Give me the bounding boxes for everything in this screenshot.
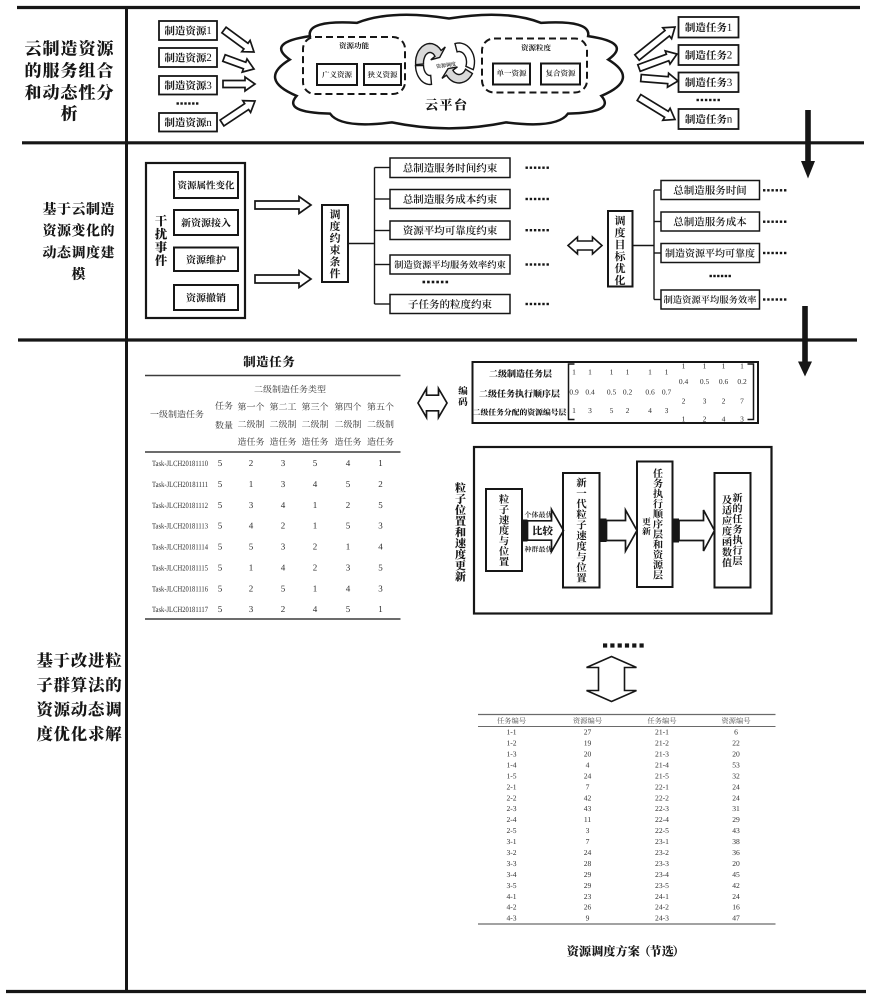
svg-text:29: 29	[584, 881, 592, 890]
svg-text:4: 4	[586, 761, 590, 770]
svg-text:23-3: 23-3	[655, 859, 669, 868]
svg-text:47: 47	[732, 914, 740, 923]
svg-text:2-1: 2-1	[506, 782, 516, 791]
svg-text:5: 5	[218, 458, 223, 468]
svg-text:5: 5	[610, 406, 614, 415]
svg-text:3: 3	[281, 542, 286, 552]
svg-text:26: 26	[584, 903, 592, 912]
svg-text:5: 5	[249, 542, 254, 552]
svg-text:22-4: 22-4	[655, 815, 669, 824]
svg-text:n: n	[206, 117, 212, 129]
svg-text:1: 1	[626, 368, 630, 377]
svg-text:1: 1	[378, 458, 383, 468]
svg-text:1: 1	[727, 22, 733, 34]
svg-text:36: 36	[732, 848, 740, 857]
svg-text:21-5: 21-5	[655, 771, 669, 780]
svg-text:22-2: 22-2	[655, 793, 669, 802]
svg-text:22: 22	[732, 739, 740, 748]
svg-text:24-2: 24-2	[655, 903, 669, 912]
svg-text:4: 4	[346, 458, 351, 468]
svg-text:Task-JLCH20181110: Task-JLCH20181110	[152, 459, 208, 468]
svg-text:0.2: 0.2	[623, 388, 633, 397]
svg-text:0.4: 0.4	[585, 388, 595, 397]
svg-text:1: 1	[572, 406, 576, 415]
svg-text:2: 2	[249, 584, 254, 594]
svg-text:3: 3	[249, 604, 254, 614]
svg-text:4: 4	[313, 479, 318, 489]
svg-text:0.5: 0.5	[700, 377, 710, 386]
svg-text:5: 5	[346, 479, 351, 489]
svg-text:7: 7	[586, 782, 590, 791]
svg-text:2: 2	[206, 52, 212, 64]
svg-text:31: 31	[732, 804, 740, 813]
svg-text:3: 3	[249, 500, 254, 510]
svg-text:22-5: 22-5	[655, 826, 669, 835]
svg-text:42: 42	[584, 793, 592, 802]
svg-text:22-1: 22-1	[655, 782, 669, 791]
svg-text:24: 24	[584, 771, 592, 780]
svg-text:Task-JLCH20181114: Task-JLCH20181114	[152, 542, 208, 551]
svg-text:1-1: 1-1	[506, 728, 516, 737]
svg-text:9: 9	[586, 914, 590, 923]
svg-text:0.5: 0.5	[607, 388, 617, 397]
svg-text:2: 2	[626, 406, 630, 415]
svg-text:4-2: 4-2	[506, 903, 516, 912]
svg-text:28: 28	[584, 859, 592, 868]
svg-text:7: 7	[740, 397, 744, 406]
svg-text:1: 1	[313, 500, 318, 510]
svg-text:4: 4	[249, 521, 254, 531]
svg-text:11: 11	[584, 815, 592, 824]
svg-text:1: 1	[665, 368, 669, 377]
svg-text:5: 5	[218, 542, 223, 552]
svg-text:24: 24	[732, 892, 740, 901]
svg-text:5: 5	[378, 563, 383, 573]
svg-text:3: 3	[740, 415, 744, 424]
svg-text:23: 23	[584, 892, 592, 901]
svg-text:5: 5	[313, 458, 318, 468]
svg-text:5: 5	[346, 521, 351, 531]
svg-text:5: 5	[218, 604, 223, 614]
svg-text:3: 3	[346, 563, 351, 573]
svg-text:4: 4	[648, 406, 652, 415]
svg-text:5: 5	[346, 604, 351, 614]
svg-text:3: 3	[588, 406, 592, 415]
svg-text:2-2: 2-2	[506, 793, 516, 802]
svg-text:3: 3	[665, 406, 669, 415]
svg-text:3: 3	[586, 826, 590, 835]
svg-text:1: 1	[313, 584, 318, 594]
svg-text:2: 2	[249, 458, 254, 468]
svg-text:2: 2	[281, 604, 286, 614]
svg-text:38: 38	[732, 837, 740, 846]
svg-text:3: 3	[206, 80, 212, 92]
svg-text:23-4: 23-4	[655, 870, 669, 879]
svg-text:2: 2	[703, 415, 707, 424]
svg-text:1: 1	[249, 479, 254, 489]
svg-text:24: 24	[732, 782, 740, 791]
svg-text:43: 43	[732, 826, 740, 835]
svg-text:3-2: 3-2	[506, 848, 516, 857]
svg-text:1: 1	[572, 368, 576, 377]
svg-text:3: 3	[703, 397, 707, 406]
svg-text:1: 1	[249, 563, 254, 573]
svg-text:24: 24	[732, 793, 740, 802]
svg-text:0.9: 0.9	[569, 388, 579, 397]
svg-text:1: 1	[206, 25, 212, 37]
svg-text:20: 20	[584, 750, 592, 759]
svg-text:4-1: 4-1	[506, 892, 516, 901]
svg-text:2: 2	[313, 542, 318, 552]
svg-text:23-5: 23-5	[655, 881, 669, 890]
svg-text:21-3: 21-3	[655, 750, 669, 759]
svg-text:4: 4	[281, 563, 286, 573]
svg-text:5: 5	[218, 584, 223, 594]
svg-text:1: 1	[313, 521, 318, 531]
svg-text:4: 4	[346, 584, 351, 594]
svg-text:53: 53	[732, 761, 740, 770]
svg-text:5: 5	[218, 479, 223, 489]
svg-text:Task-JLCH20181112: Task-JLCH20181112	[152, 501, 208, 510]
svg-text:21-1: 21-1	[655, 728, 669, 737]
svg-text:4-3: 4-3	[506, 914, 516, 923]
svg-text:3: 3	[378, 584, 383, 594]
svg-text:Task-JLCH20181117: Task-JLCH20181117	[152, 605, 208, 614]
svg-text:1: 1	[346, 542, 351, 552]
svg-text:0.6: 0.6	[719, 377, 729, 386]
svg-text:2-3: 2-3	[506, 804, 516, 813]
svg-text:2-5: 2-5	[506, 826, 516, 835]
svg-text:Task-JLCH20181116: Task-JLCH20181116	[152, 584, 208, 593]
svg-text:4: 4	[313, 604, 318, 614]
svg-text:2: 2	[727, 50, 733, 62]
svg-text:0.2: 0.2	[737, 377, 747, 386]
svg-text:21-2: 21-2	[655, 739, 669, 748]
svg-text:1: 1	[610, 368, 614, 377]
svg-text:19: 19	[584, 739, 592, 748]
svg-text:1-5: 1-5	[506, 771, 516, 780]
svg-text:3-1: 3-1	[506, 837, 516, 846]
svg-text:43: 43	[584, 804, 592, 813]
svg-text:24-1: 24-1	[655, 892, 669, 901]
svg-text:5: 5	[281, 584, 286, 594]
svg-text:23-2: 23-2	[655, 848, 669, 857]
svg-text:3: 3	[281, 458, 286, 468]
svg-text:Task-JLCH20181113: Task-JLCH20181113	[152, 521, 208, 530]
svg-text:2: 2	[346, 500, 351, 510]
svg-text:3: 3	[281, 479, 286, 489]
svg-text:1: 1	[682, 361, 686, 370]
svg-text:5: 5	[218, 563, 223, 573]
svg-text:n: n	[727, 114, 733, 126]
svg-text:32: 32	[732, 771, 740, 780]
svg-text:0.6: 0.6	[645, 388, 655, 397]
svg-text:20: 20	[732, 859, 740, 868]
svg-text:1: 1	[588, 368, 592, 377]
svg-text:5: 5	[218, 500, 223, 510]
svg-text:24: 24	[584, 848, 592, 857]
svg-text:2: 2	[281, 521, 286, 531]
svg-text:22-3: 22-3	[655, 804, 669, 813]
svg-text:3: 3	[378, 521, 383, 531]
svg-text:1: 1	[378, 604, 383, 614]
svg-text:3-5: 3-5	[506, 881, 516, 890]
svg-text:5: 5	[218, 521, 223, 531]
svg-text:16: 16	[732, 903, 740, 912]
svg-text:Task-JLCH20181111: Task-JLCH20181111	[152, 480, 208, 489]
svg-text:1: 1	[682, 415, 686, 424]
svg-text:4: 4	[378, 542, 383, 552]
svg-text:1-3: 1-3	[506, 750, 516, 759]
svg-text:1-2: 1-2	[506, 739, 516, 748]
svg-text:3: 3	[727, 77, 733, 89]
svg-text:21-4: 21-4	[655, 761, 669, 770]
svg-text:29: 29	[732, 815, 740, 824]
svg-text:0.7: 0.7	[662, 388, 672, 397]
svg-text:7: 7	[586, 837, 590, 846]
svg-text:3-4: 3-4	[506, 870, 516, 879]
svg-text:23-1: 23-1	[655, 837, 669, 846]
svg-text:1: 1	[722, 361, 726, 370]
svg-text:2: 2	[313, 563, 318, 573]
svg-text:24-3: 24-3	[655, 914, 669, 923]
svg-text:5: 5	[378, 500, 383, 510]
svg-text:4: 4	[722, 415, 726, 424]
svg-text:2: 2	[682, 397, 686, 406]
svg-text:3-3: 3-3	[506, 859, 516, 868]
svg-text:1: 1	[740, 361, 744, 370]
svg-text:1-4: 1-4	[506, 761, 516, 770]
svg-text:42: 42	[732, 881, 740, 890]
svg-text:45: 45	[732, 870, 740, 879]
svg-text:29: 29	[584, 870, 592, 879]
svg-text:1: 1	[703, 361, 707, 370]
svg-text:Task-JLCH20181115: Task-JLCH20181115	[152, 563, 208, 572]
svg-text:6: 6	[734, 728, 738, 737]
svg-text:2: 2	[378, 479, 383, 489]
svg-text:2: 2	[722, 397, 726, 406]
svg-text:27: 27	[584, 728, 592, 737]
svg-text:0.4: 0.4	[679, 377, 689, 386]
svg-text:20: 20	[732, 750, 740, 759]
svg-text:1: 1	[648, 368, 652, 377]
svg-text:2-4: 2-4	[506, 815, 516, 824]
svg-text:4: 4	[281, 500, 286, 510]
